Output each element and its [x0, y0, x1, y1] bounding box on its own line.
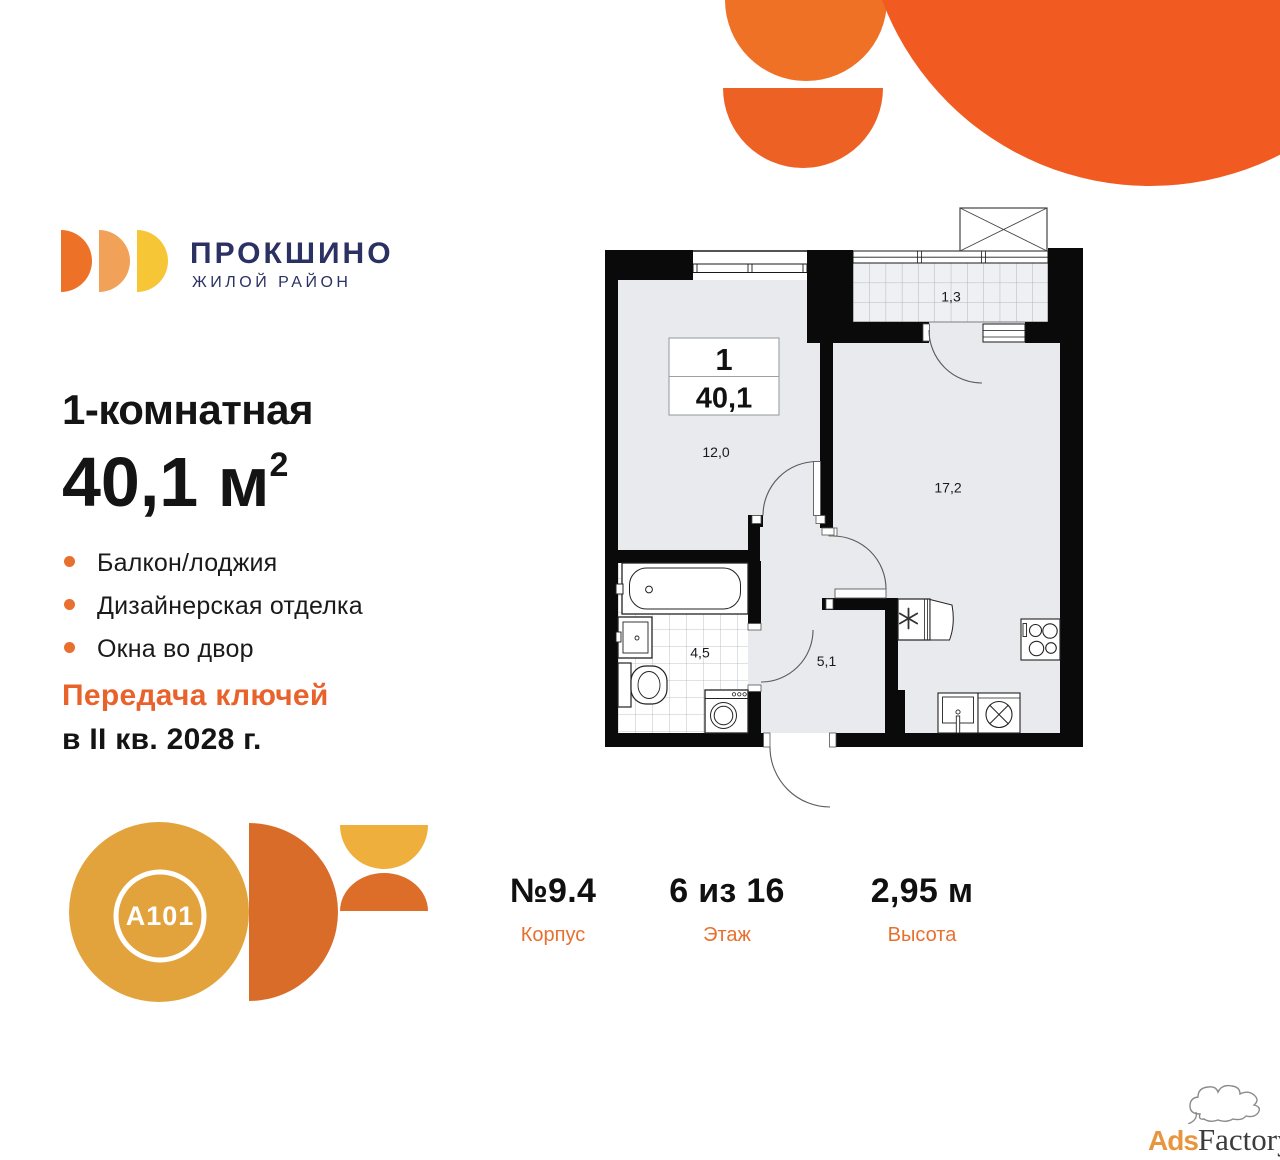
feature-label: Балкон/лоджия [97, 549, 277, 577]
room-label-bedroom: 12,0 [702, 444, 729, 460]
a101-text: A101 [126, 901, 195, 931]
floorplan: 1 40,1 12,0 1,3 17,2 4,5 5,1 [600, 195, 1090, 820]
feature-label: Дизайнерская отделка [97, 592, 363, 620]
feature-item: Дизайнерская отделка [62, 592, 363, 635]
height-label: Высота [871, 924, 974, 947]
shaft-crossed-box [960, 208, 1047, 251]
brand-name: ПРОКШИНО [190, 237, 394, 271]
floor-label: Этаж [669, 924, 785, 947]
unit-rooms-count: 1 [715, 342, 732, 377]
brand-logo-icon [59, 229, 177, 295]
area-headline: 40,1 м2 [62, 430, 288, 517]
watermark: AdsFactory [1148, 1080, 1280, 1160]
watermark-text: AdsFactory [1148, 1122, 1280, 1158]
bedroom-window [693, 250, 807, 280]
height-value: 2,95 м [871, 872, 974, 911]
a101-semicircle-orange [340, 873, 428, 911]
watermark-factory: Factory [1198, 1122, 1280, 1157]
decor-circle-large [864, 0, 1280, 186]
handover-accent: Передача ключей [62, 679, 329, 713]
room-label-bathroom: 4,5 [690, 645, 710, 661]
watermark-ads: Ads [1148, 1125, 1198, 1156]
flyer-page: ПРОКШИНО ЖИЛОЙ РАЙОН 1-комнатная 40,1 м2… [0, 0, 1280, 1160]
room-label-hallway: 5,1 [817, 653, 837, 669]
area-superscript: 2 [269, 446, 288, 484]
brand-halfcircle-2 [99, 230, 130, 292]
unit-info-box: 1 40,1 [669, 338, 779, 415]
rooms-title: 1-комнатная [62, 386, 313, 434]
room-label-balcony: 1,3 [941, 289, 961, 305]
building-value: №9.4 [510, 872, 596, 911]
detail-building: №9.4 Корпус [510, 872, 596, 947]
room-label-living: 17,2 [934, 480, 961, 496]
bullet-icon [64, 642, 75, 653]
area-value: 40,1 м [62, 443, 269, 521]
unit-area: 40,1 [696, 383, 752, 415]
handover-date: в II кв. 2028 г. [62, 723, 262, 757]
brand-halfcircle-1 [61, 230, 92, 292]
developer-logo: A101 [30, 812, 450, 1012]
fridge [898, 599, 930, 640]
feature-list: Балкон/лоджия Дизайнерская отделка Окна … [62, 549, 363, 678]
brand-halfcircle-3 [137, 230, 168, 292]
bullet-icon [64, 599, 75, 610]
living-window-piece [983, 324, 1025, 342]
floor-value: 6 из 16 [669, 872, 785, 911]
feature-item: Окна во двор [62, 635, 363, 678]
cloud-icon [1186, 1080, 1278, 1124]
toilet [618, 663, 631, 707]
balcony-glazing [853, 251, 1048, 263]
bullet-icon [64, 556, 75, 567]
detail-height: 2,95 м Высота [871, 872, 974, 947]
decor-semicircle-small-bottom [723, 88, 883, 168]
feature-label: Окна во двор [97, 635, 254, 663]
building-label: Корпус [510, 924, 596, 947]
decor-semicircle-small-top [725, 0, 887, 81]
a101-semicircle-yellow [340, 825, 428, 869]
a101-halfcircle [249, 823, 338, 1001]
feature-item: Балкон/лоджия [62, 549, 363, 592]
brand-tagline: ЖИЛОЙ РАЙОН [192, 274, 351, 292]
detail-floor: 6 из 16 Этаж [669, 872, 785, 947]
